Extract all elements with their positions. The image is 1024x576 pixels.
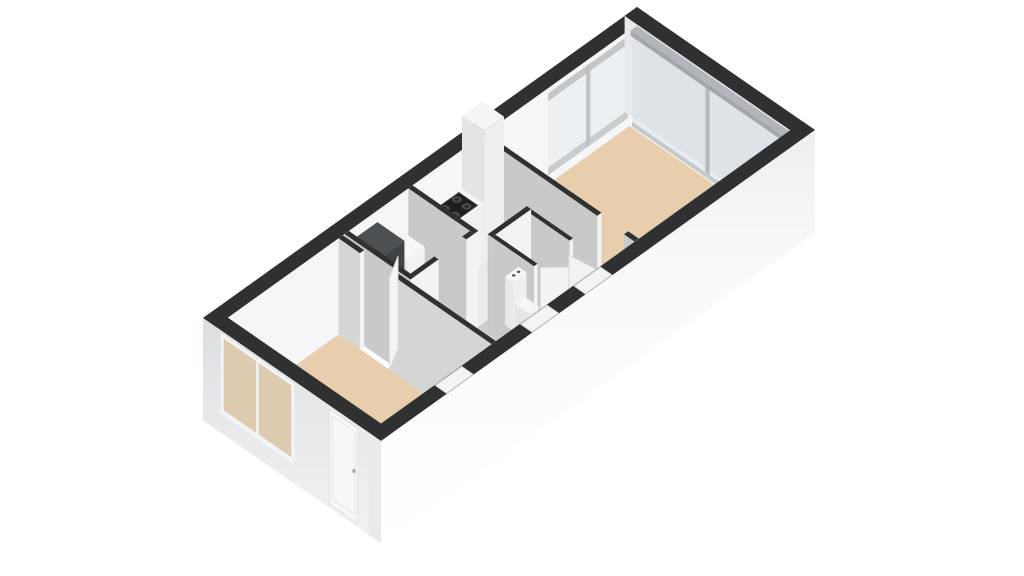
living-window-mullion [586,63,590,148]
stove-burner-center [464,205,468,208]
bedroom-wall-a-side-right [360,250,364,349]
toilet-flush-button [512,274,516,276]
bedroom-door-leaf-open [390,256,399,369]
floorplan-stage [0,0,1024,576]
stove-burner-center [455,198,459,201]
window-wall-mullion [705,85,709,179]
toilet-cistern-side-left [505,277,513,331]
kitchen-bathroom-divider-wall-side-right [474,231,478,330]
entrance-door-handle [352,469,355,473]
left-window-mullion [256,361,259,435]
entrance-door [329,409,358,523]
bathroom-wall-a-side-right [466,234,474,336]
wc-wall-top-side-left [488,234,492,333]
floorplan-3d-render [0,0,1024,576]
toilet-flush-button [517,271,521,273]
bedroom-wall-a-side-left [339,238,360,349]
exterior-wall-front-side-left [369,432,381,543]
